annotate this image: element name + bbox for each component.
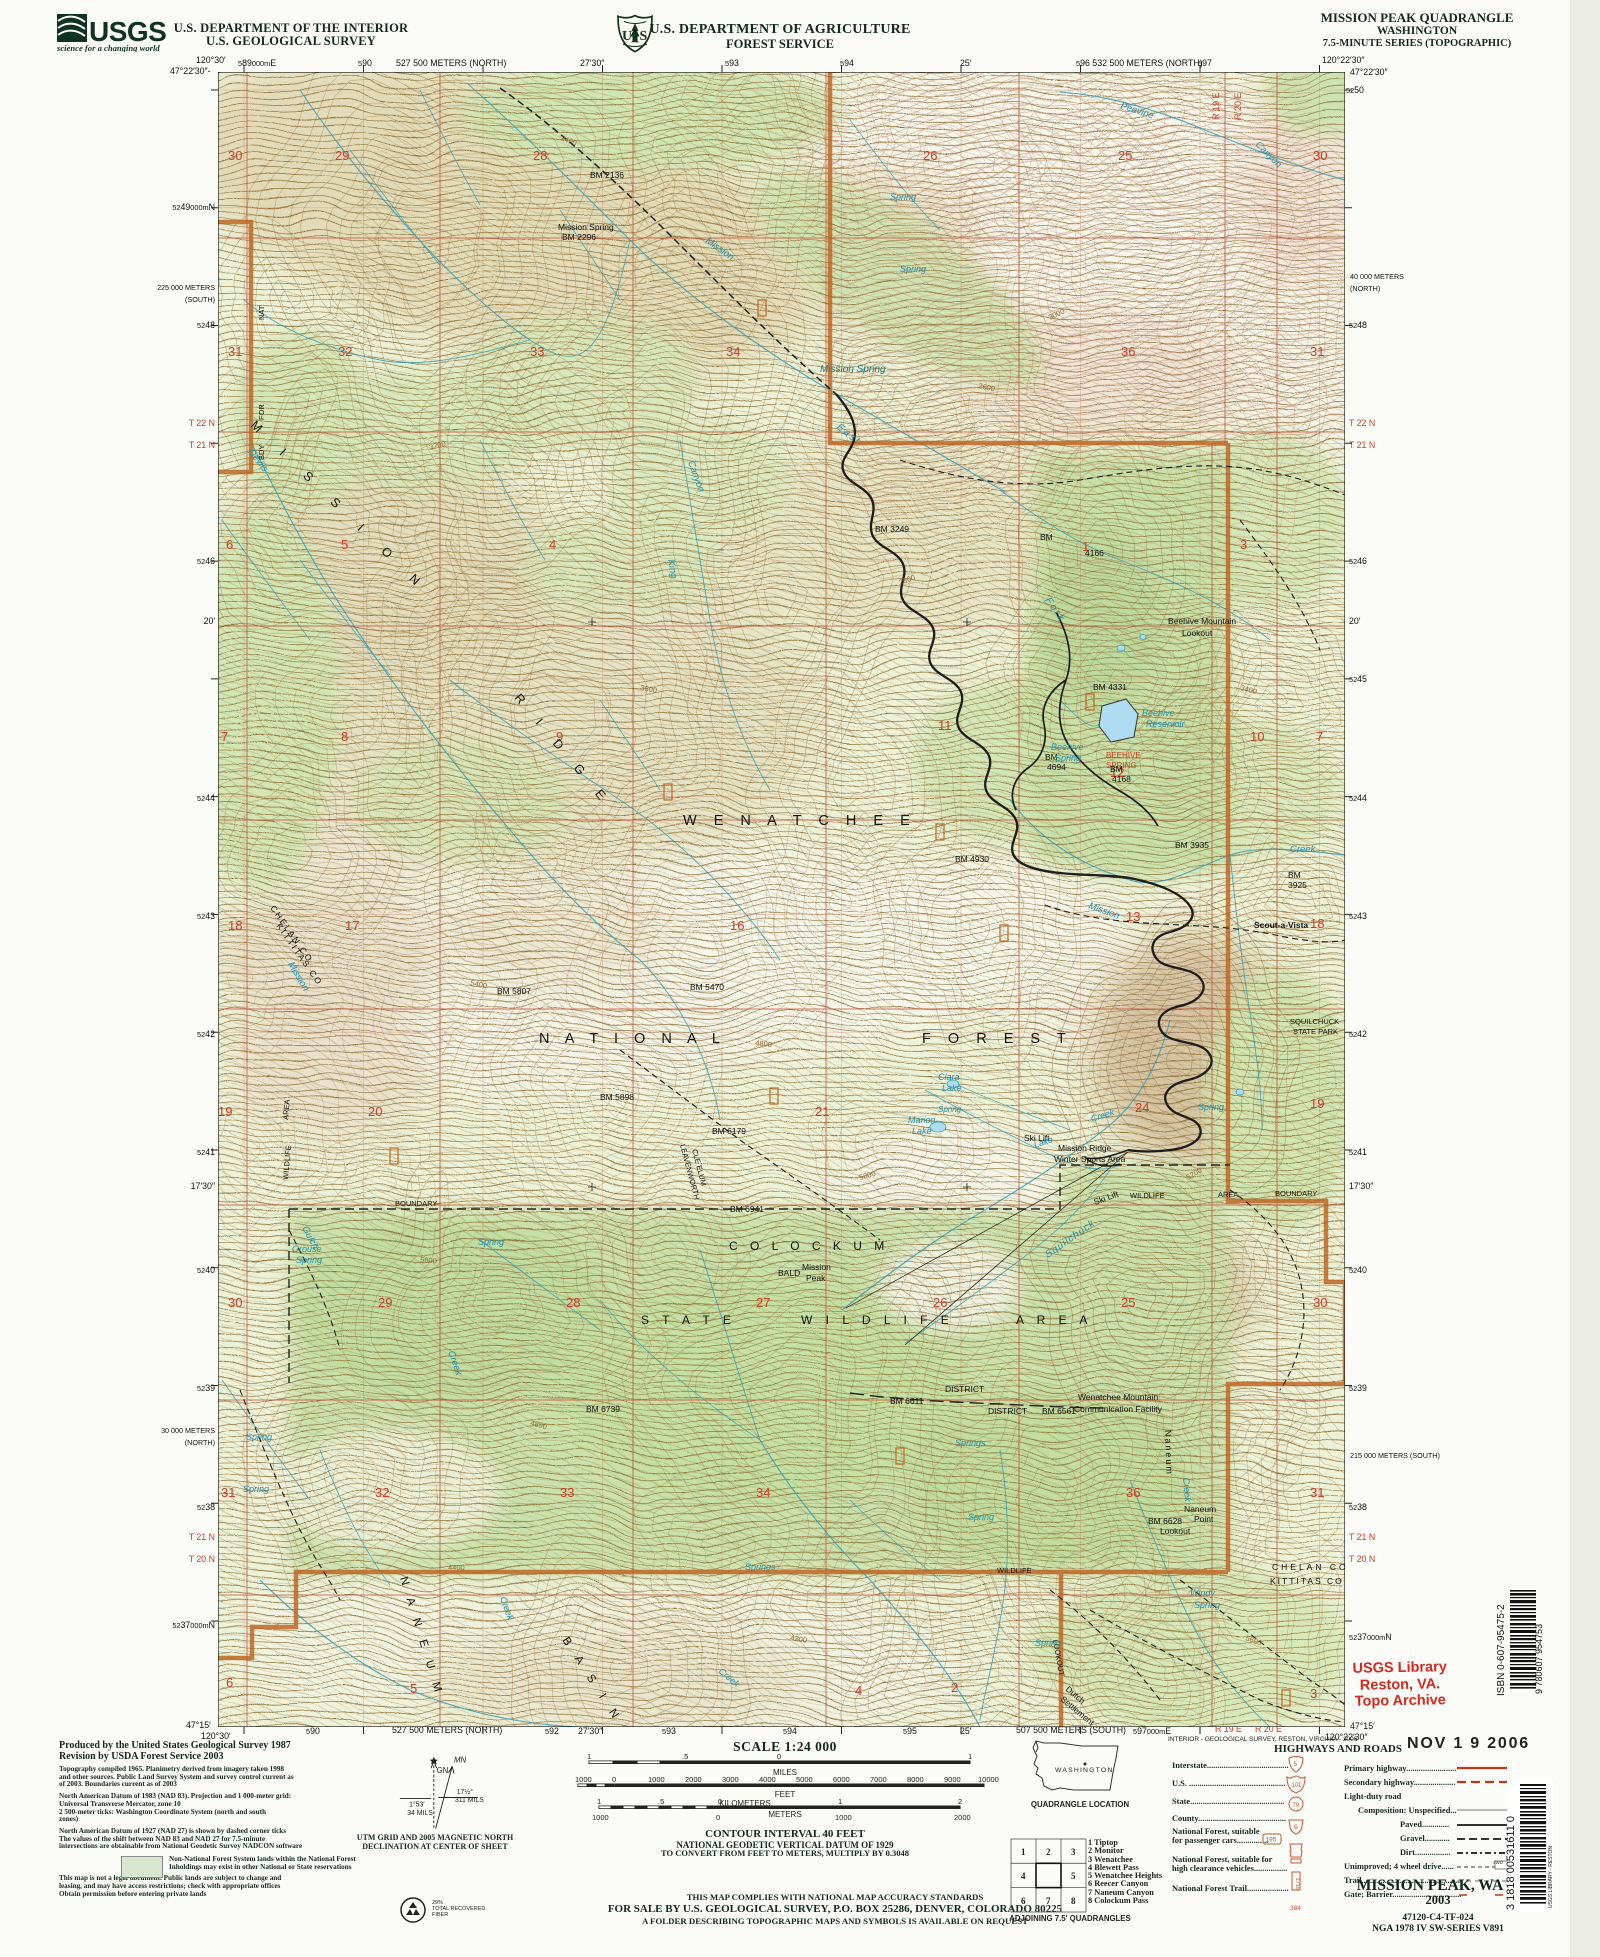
svg-text:BM 5898: BM 5898 [600,1092,634,1102]
svg-text:W I L D L I F E: W I L D L I F E [801,1313,954,1327]
svg-text:7: 7 [221,729,228,744]
svg-text:2: 2 [1046,1847,1051,1857]
svg-text:6: 6 [226,537,233,552]
svg-text:3: 3 [1071,1847,1076,1857]
svg-text:31: 31 [1310,1485,1324,1500]
svg-text:5: 5 [341,537,348,552]
svg-text:16: 16 [730,918,744,933]
svg-text:28: 28 [533,148,547,163]
svg-text:FOR: FOR [257,404,266,420]
svg-text:BM 5807: BM 5807 [497,986,531,996]
svg-text:WASHINGTON: WASHINGTON [1055,1767,1113,1774]
svg-text:Creek: Creek [1181,1477,1193,1502]
svg-text:8000: 8000 [907,1775,924,1784]
svg-text:18: 18 [228,918,242,933]
svg-text:29: 29 [335,148,349,163]
svg-text:101: 101 [1292,1783,1303,1789]
svg-text:Mission Spring: Mission Spring [820,364,886,375]
svg-text:384: 384 [1290,1905,1301,1912]
svg-text:WILDLIFE: WILDLIFE [997,1566,1032,1575]
svg-text:Peak: Peak [806,1273,826,1283]
svg-text:3: 3 [1310,1686,1317,1701]
svg-text:Spring: Spring [900,264,926,274]
svg-text:C O L O C K U M: C O L O C K U M [729,1239,889,1253]
svg-text:26: 26 [933,1295,947,1310]
svg-text:13: 13 [1126,909,1140,924]
svg-text:195: 195 [1266,1837,1277,1844]
svg-text:33: 33 [560,1485,574,1500]
svg-text:S T A T E: S T A T E [641,1313,736,1327]
svg-text:8: 8 [1071,1896,1076,1906]
svg-text:Clara: Clara [938,1072,960,1082]
svg-text:34 MILS: 34 MILS [407,1810,433,1817]
svg-text:BOUNDARY: BOUNDARY [1275,1189,1317,1198]
svg-text:31: 31 [228,344,242,359]
svg-text:DISTRICT: DISTRICT [988,1406,1027,1416]
svg-text:1: 1 [597,1797,601,1806]
svg-text:BM 4331: BM 4331 [1093,682,1127,692]
svg-text:33: 33 [530,344,544,359]
svg-text:Creek: Creek [1290,844,1317,855]
svg-text:Winter Sports Area: Winter Sports Area [1054,1154,1126,1164]
svg-text:R 20 E: R 20 E [1233,92,1243,120]
svg-text:Naneum: Naneum [1163,1430,1175,1476]
svg-text:Mission Ridge: Mission Ridge [1058,1143,1112,1153]
svg-text:A R E A: A R E A [1016,1313,1092,1327]
svg-text:Grouse: Grouse [292,1244,322,1254]
svg-text:29: 29 [378,1295,392,1310]
svg-text:5: 5 [1294,1761,1298,1768]
svg-text:10: 10 [1250,729,1264,744]
svg-text:NAT: NAT [257,305,266,320]
svg-text:31: 31 [1310,344,1324,359]
svg-text:10000: 10000 [978,1775,999,1784]
svg-text:Spring: Spring [478,1237,504,1247]
svg-text:2: 2 [951,1680,958,1695]
svg-text:1000: 1000 [575,1775,592,1784]
svg-text:1: 1 [587,1752,591,1761]
svg-text:BM 6561: BM 6561 [1042,1406,1076,1416]
svg-text:BM 3249: BM 3249 [875,524,909,534]
svg-text:28: 28 [566,1295,580,1310]
svg-text:N A T I O N A L: N A T I O N A L [539,1031,726,1047]
svg-text:36: 36 [1121,344,1135,359]
svg-text:25: 25 [1121,1295,1135,1310]
svg-text:.5: .5 [682,1752,688,1761]
svg-text:Beehive Mountain: Beehive Mountain [1168,616,1236,626]
svg-text:17: 17 [345,918,359,933]
svg-text:7: 7 [1046,1896,1051,1906]
svg-text:Scout-a-Vista: Scout-a-Vista [1254,920,1308,930]
svg-text:21: 21 [815,1104,829,1119]
svg-text:Lake: Lake [912,1126,932,1136]
svg-text:17½°: 17½° [457,1788,473,1796]
svg-text:31: 31 [221,1485,235,1500]
svg-text:Communication Facility: Communication Facility [1074,1404,1163,1414]
svg-text:Beehive: Beehive [1051,742,1084,752]
svg-text:Wenatchee Mountain: Wenatchee Mountain [1078,1392,1158,1402]
svg-text:DISTRICT: DISTRICT [945,1384,984,1394]
svg-text:0: 0 [612,1775,616,1784]
svg-text:3: 3 [1240,537,1247,552]
svg-text:26: 26 [923,148,937,163]
svg-text:Lake: Lake [942,1083,962,1093]
svg-text:3925: 3925 [1288,880,1307,890]
svg-text:4400: 4400 [448,1563,465,1572]
svg-text:BM 3935: BM 3935 [1175,840,1209,850]
svg-text:30: 30 [1313,1295,1327,1310]
svg-text:F O R E S T: F O R E S T [922,1031,1072,1047]
svg-text:BM 2296: BM 2296 [562,232,596,242]
svg-text:Beehive: Beehive [1142,708,1175,718]
svg-text:3 1818 00531611 0: 3 1818 00531611 0 [1505,1816,1517,1910]
svg-text:BALD: BALD [778,1268,800,1278]
svg-text:Spring: Spring [246,1432,272,1442]
svg-text:Marion: Marion [908,1115,936,1125]
svg-text:BM 5470: BM 5470 [690,982,724,992]
svg-text:Spring: Spring [296,1255,322,1265]
svg-text:4: 4 [549,537,556,552]
svg-text:34: 34 [726,344,740,359]
svg-text:KITTITAS CO: KITTITAS CO [1270,1576,1344,1586]
svg-text:20: 20 [368,1104,382,1119]
svg-text:30: 30 [1313,148,1327,163]
svg-text:5: 5 [410,1681,417,1696]
svg-text:SQUILCHUCK: SQUILCHUCK [1290,1017,1339,1026]
svg-text:Lookout: Lookout [1182,628,1213,638]
svg-text:BM 2136: BM 2136 [590,170,624,180]
svg-text:4166: 4166 [1085,548,1104,558]
svg-text:BM 4930: BM 4930 [955,854,989,864]
svg-text:11: 11 [938,718,952,733]
svg-text:Spring: Spring [968,1512,994,1522]
svg-text:32: 32 [375,1485,389,1500]
svg-text:9000: 9000 [944,1775,961,1784]
svg-text:ISBN 0-607-95475-2: ISBN 0-607-95475-2 [1496,1604,1507,1696]
svg-text:27: 27 [756,1295,770,1310]
svg-text:32: 32 [338,344,352,359]
svg-text:Spring: Spring [1194,1600,1220,1610]
svg-text:25: 25 [1118,148,1132,163]
svg-text:USGS LIBRARY - RESTON: USGS LIBRARY - RESTON [1548,1846,1554,1908]
svg-text:1000: 1000 [648,1775,665,1784]
svg-text:Reservoir: Reservoir [1146,719,1186,729]
svg-text:79: 79 [1293,1803,1300,1809]
svg-text:4: 4 [1021,1871,1026,1881]
svg-text:36: 36 [1126,1485,1140,1500]
svg-text:7: 7 [1316,729,1323,744]
svg-text:BEEHIVE: BEEHIVE [1106,751,1141,760]
svg-text:30: 30 [228,1295,242,1310]
svg-text:BM 6628: BM 6628 [1148,1516,1182,1526]
svg-text:AREA: AREA [1218,1190,1238,1199]
svg-text:Spring: Spring [938,1105,962,1114]
svg-text:Spring: Spring [243,1484,269,1494]
svg-text:1715: 1715 [1294,1878,1300,1890]
svg-text:Naneum: Naneum [1184,1504,1216,1514]
svg-text:Springs: Springs [955,1438,986,1448]
svg-text:0: 0 [777,1752,781,1761]
svg-text:Spring: Spring [890,192,916,202]
svg-text:24: 24 [1135,1100,1149,1115]
svg-text:BM 6941: BM 6941 [730,1204,764,1214]
svg-text:2000: 2000 [954,1813,971,1822]
svg-text:6: 6 [1021,1896,1026,1906]
svg-text:Windy: Windy [1190,1588,1215,1598]
svg-text:2: 2 [958,1797,962,1806]
svg-text:Mission: Mission [802,1262,831,1272]
svg-text:AREA: AREA [281,1099,292,1120]
svg-text:WILDLIFE: WILDLIFE [1130,1191,1165,1200]
svg-text:19: 19 [1310,1096,1324,1111]
svg-text:19: 19 [218,1104,232,1119]
svg-text:4: 4 [855,1683,862,1698]
svg-text:Spring: Spring [1198,1102,1224,1112]
svg-text:311 MILS: 311 MILS [455,1797,484,1804]
svg-text:5: 5 [1071,1871,1076,1881]
svg-text:1000: 1000 [592,1813,609,1822]
svg-text:BM 6739: BM 6739 [586,1404,620,1414]
svg-text:W E N A T C H E E: W E N A T C H E E [683,813,916,829]
svg-text:Point: Point [1194,1514,1214,1524]
svg-text:4694: 4694 [1047,762,1066,772]
svg-text:30: 30 [228,148,242,163]
svg-text:CHELAN CO: CHELAN CO [1272,1562,1349,1572]
svg-text:8: 8 [341,729,348,744]
svg-text:Spring: Spring [1055,753,1081,763]
svg-text:BM: BM [1288,870,1301,880]
svg-text:4168: 4168 [1112,774,1131,784]
svg-text:34: 34 [756,1485,770,1500]
svg-text:Mission Spring: Mission Spring [558,222,614,232]
svg-text:5600: 5600 [420,1255,437,1265]
svg-text:7000: 7000 [870,1775,887,1784]
svg-text:BM 6611: BM 6611 [890,1396,924,1406]
svg-text:BM: BM [1110,764,1123,774]
svg-text:MN: MN [454,1756,466,1765]
svg-text:1: 1 [968,1752,972,1761]
svg-text:1°53′: 1°53′ [409,1801,425,1809]
svg-text:Lookout: Lookout [1160,1526,1191,1536]
svg-text:6: 6 [226,1675,233,1690]
svg-text:6: 6 [1294,1824,1298,1831]
svg-text:BM: BM [1040,532,1053,542]
svg-text:9 780607 954753: 9 780607 954753 [1534,1624,1544,1694]
svg-text:Spring: Spring [1035,1638,1061,1648]
svg-text:1: 1 [1021,1847,1026,1857]
svg-text:Springs: Springs [745,1562,776,1572]
svg-text:BM 6179: BM 6179 [712,1126,746,1136]
svg-text:BOUNDARY: BOUNDARY [395,1199,437,1208]
svg-text:18: 18 [1310,916,1324,931]
svg-text:STATE PARK: STATE PARK [1293,1027,1338,1036]
svg-text:GN: GN [437,1766,449,1775]
svg-text:R 19 E: R 19 E [1211,92,1221,120]
